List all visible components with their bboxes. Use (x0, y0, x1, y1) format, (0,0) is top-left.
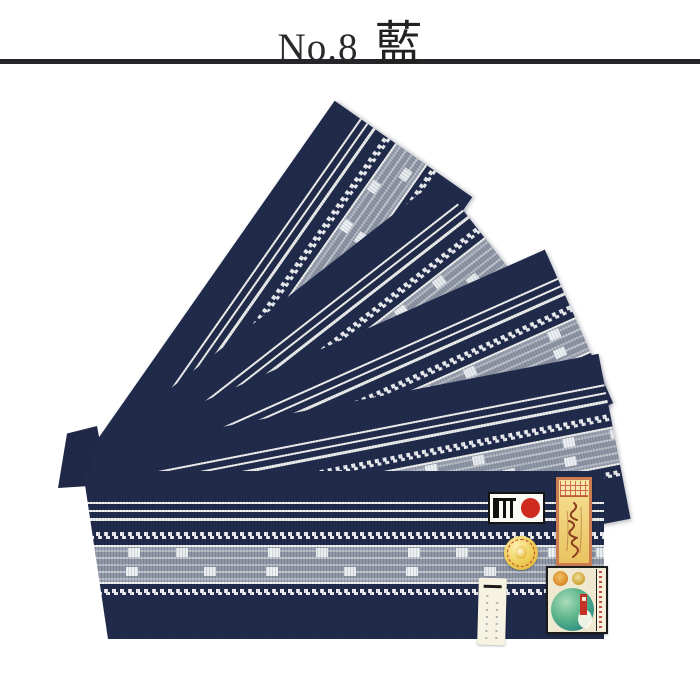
tag-ink-bar (484, 585, 502, 588)
green-globe-emblem-icon (551, 588, 594, 631)
orange-seal-icon (553, 571, 568, 586)
maker-seal-label (488, 492, 545, 524)
red-sun-circle-icon (521, 498, 540, 518)
page-header: No.8 藍 (0, 0, 700, 59)
red-mark-icon (580, 594, 587, 615)
gold-seal-icon (572, 572, 585, 585)
red-vertical-text-column (596, 569, 605, 631)
label-fine-print-grid (560, 481, 588, 497)
product-photo (0, 64, 700, 700)
calligraphy-strokes (563, 499, 585, 561)
orange-tag-label (556, 477, 592, 566)
gold-round-sticker (504, 536, 538, 570)
paper-tag (477, 578, 507, 646)
green-emblem-label (546, 566, 608, 634)
kenjo-stripe-mark-icon (493, 498, 516, 518)
